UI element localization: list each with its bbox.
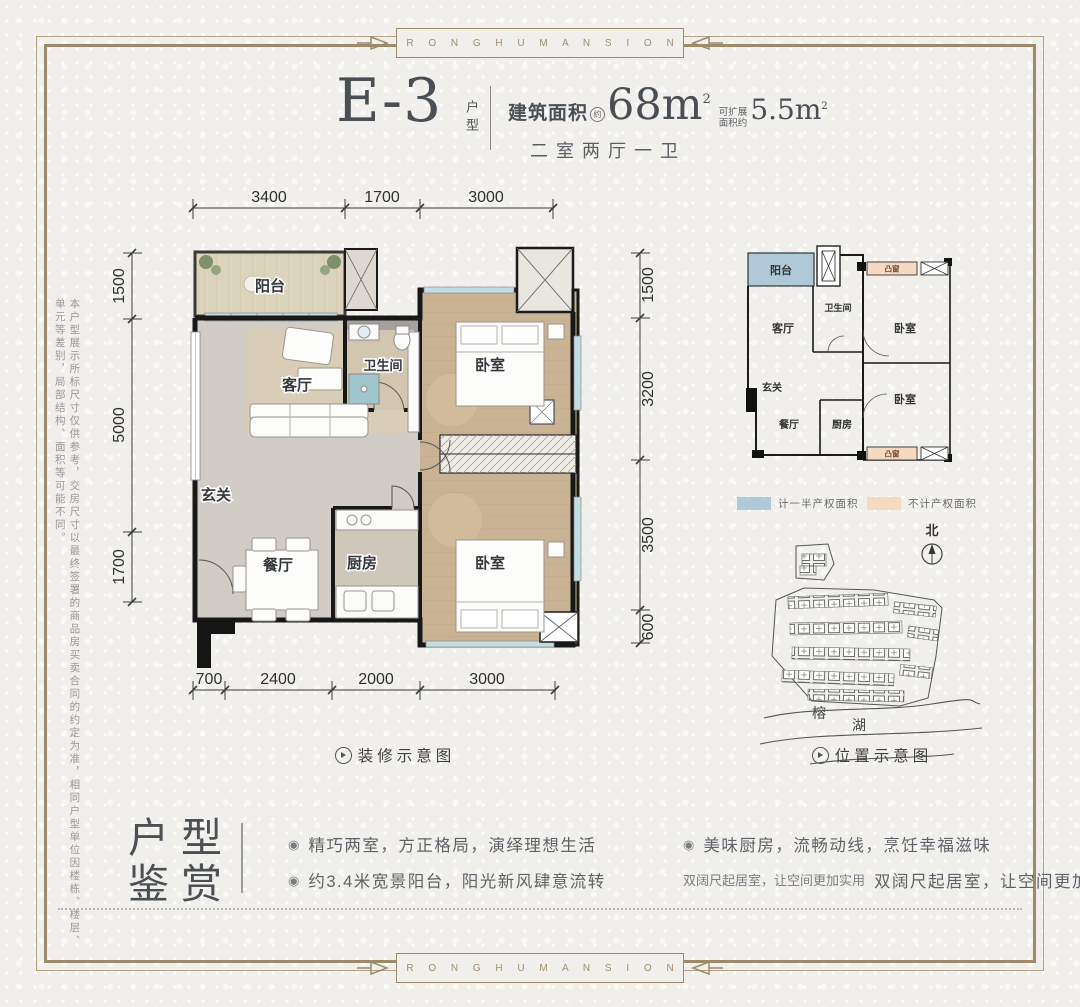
dim-right-1: 1500 xyxy=(640,267,657,303)
left-chevron-icon xyxy=(357,35,391,51)
kitchen-label: 厨房 xyxy=(347,554,377,572)
main-floorplan: 阳台 客厅 卫生间 卧室 玄关 餐厅 厨房 卧室 3400 1700 3000 … xyxy=(105,165,685,790)
bullet-icon: 双阔尺起居室，让空间更加实用 xyxy=(683,874,865,887)
dim-right-4: 600 xyxy=(640,614,657,641)
duct-shaft xyxy=(345,249,377,310)
area-value: 68m xyxy=(607,86,703,125)
kp-wall-chunk xyxy=(857,451,866,460)
expand-area-label: 可扩展面积约 xyxy=(719,108,748,130)
kp-bedroom-bottom-label: 卧室 xyxy=(894,392,916,406)
brand-text: R O N G H U M A N S I O N xyxy=(400,963,679,974)
appreciation-divider xyxy=(241,823,243,893)
kp-wall-chunk xyxy=(857,262,866,271)
kp-bay-top-label: 凸窗 xyxy=(885,264,900,274)
key-plan: 阳台 凸窗 凸窗 客厅 xyxy=(735,235,970,480)
area-label: 建筑面积 xyxy=(508,98,588,125)
dim-left-3: 1700 xyxy=(111,549,128,585)
bullet-item: ◉ 美味厨房，流畅动线，烹饪幸福滋味 xyxy=(683,832,991,856)
bullet-item: ◉ 约3.4米宽景阳台，阳光新风肆意流转 xyxy=(288,868,606,892)
kp-wall-chunk xyxy=(752,450,764,458)
entry-steps xyxy=(197,620,235,668)
dim-bottom-2: 2400 xyxy=(260,671,296,688)
floorplan-caption: 装修示意图 xyxy=(105,744,685,766)
lake-char-2: 湖 xyxy=(852,717,866,733)
siteplan-caption: 位置示意图 xyxy=(752,744,992,766)
kp-bed1-door xyxy=(863,330,889,356)
play-circle-icon xyxy=(335,747,352,764)
dim-bottom-1: 700 xyxy=(196,671,223,688)
bullet-icon: ◉ xyxy=(683,838,694,851)
siteplan-caption-text: 位置示意图 xyxy=(835,744,933,766)
foyer-label: 玄关 xyxy=(201,486,231,504)
kp-foyer-label: 玄关 xyxy=(762,381,782,394)
bedroom1-side-window xyxy=(574,336,581,410)
expand-label-line2: 面积约 xyxy=(719,118,748,129)
appreciation-title-line1: 户型 xyxy=(128,816,234,862)
kp-corner-window-bottom xyxy=(921,447,948,460)
right-chevron-icon xyxy=(689,960,723,976)
kp-elevator xyxy=(817,246,840,286)
kp-right-wall xyxy=(863,262,950,460)
left-chevron-icon xyxy=(357,960,391,976)
bedroom-top-window xyxy=(424,287,514,293)
appreciation-title: 户型 鉴赏 xyxy=(128,816,234,908)
area-block: 建筑面积约68m2可扩展面积约5.5m2 二室两厅一卫 xyxy=(508,86,800,163)
wardrobes xyxy=(420,435,576,473)
lake-char-1: 榕 xyxy=(812,705,826,721)
dim-bottom-3: 2000 xyxy=(358,671,394,688)
dining-furniture xyxy=(233,538,318,621)
dim-top-1: 3400 xyxy=(251,189,287,206)
floorplan-caption-text: 装修示意图 xyxy=(358,744,456,766)
top-border-ornament: R O N G H U M A N S I O N xyxy=(396,28,684,58)
dotted-separator xyxy=(58,908,1022,910)
expand-area-value: 5.5m xyxy=(750,93,821,126)
page: R O N G H U M A N S I O N R O N G H U M … xyxy=(0,0,1080,1007)
expand-label-line1: 可扩展 xyxy=(719,107,748,118)
kp-corner-window-top xyxy=(921,262,948,275)
right-chevron-icon xyxy=(689,35,723,51)
corner-window-box xyxy=(540,612,578,642)
kp-living-label: 客厅 xyxy=(771,321,794,335)
kp-kitchen-label: 厨房 xyxy=(832,418,852,431)
bullet-item: ◉ 精巧两室，方正格局，演绎理想生活 xyxy=(288,832,596,856)
play-circle-icon xyxy=(812,747,829,764)
rooms-summary: 二室两厅一卫 xyxy=(508,137,800,163)
bedroom2-bottom-window xyxy=(426,641,554,647)
site-plan: 榕 湖 xyxy=(752,538,992,778)
dim-left-2: 5000 xyxy=(111,407,128,443)
dim-left-1: 1500 xyxy=(111,268,128,304)
dim-bottom-4: 3000 xyxy=(469,671,505,688)
dim-top-3: 3000 xyxy=(468,189,504,206)
kp-bath-door xyxy=(828,336,844,352)
site-detached-block xyxy=(796,544,834,580)
bedroom2-side-window xyxy=(574,497,581,581)
kp-bedroom-top-label: 卧室 xyxy=(894,321,916,335)
kp-balcony-label: 阳台 xyxy=(770,263,792,277)
legend-label: 计一半产权面积 xyxy=(778,496,859,511)
legend-swatch-orange xyxy=(867,497,901,510)
kp-wall-chunk xyxy=(746,388,757,412)
expand-superscript: 2 xyxy=(821,101,827,112)
bullet-text: 双阔尺起居室，让空间更加实用 xyxy=(874,868,1080,892)
kp-bay-bottom-label: 凸窗 xyxy=(885,449,900,459)
area-superscript: 2 xyxy=(703,92,711,107)
unit-code: E-3 xyxy=(336,66,442,136)
header: E-3 户型 建筑面积约68m2可扩展面积约5.5m2 二室两厅一卫 xyxy=(330,70,800,160)
bullet-text: 约3.4米宽景阳台，阳光新风肆意流转 xyxy=(308,868,605,892)
bullet-icon: ◉ xyxy=(288,874,299,887)
dim-right-3: 3500 xyxy=(640,517,657,553)
living-label: 客厅 xyxy=(281,376,312,394)
bedroom-top-label: 卧室 xyxy=(475,356,505,374)
approx-badge: 约 xyxy=(590,107,605,122)
bullet-text: 美味厨房，流畅动线，烹饪幸福滋味 xyxy=(703,832,991,856)
header-divider xyxy=(490,86,491,150)
bullet-icon: ◉ xyxy=(288,838,299,851)
brand-text: R O N G H U M A N S I O N xyxy=(400,38,679,49)
kp-bed2-door xyxy=(863,394,887,418)
unit-type-label: 户型 xyxy=(462,100,481,136)
elevator-shaft xyxy=(517,248,573,312)
appreciation-title-line2: 鉴赏 xyxy=(128,862,234,908)
bedroom-bottom-label: 卧室 xyxy=(475,554,505,572)
site-buildings xyxy=(782,593,939,702)
dim-right-2: 3200 xyxy=(640,371,657,407)
kp-dining-label: 餐厅 xyxy=(778,418,799,431)
plant xyxy=(199,255,213,269)
legend-no-property: 不计产权面积 xyxy=(867,496,977,511)
plant xyxy=(327,255,341,269)
bullet-text: 精巧两室，方正格局，演绎理想生活 xyxy=(308,832,596,856)
legend-half-property: 计一半产权面积 xyxy=(737,496,859,511)
kp-bathroom-label: 卫生间 xyxy=(824,302,851,313)
legend-label: 不计产权面积 xyxy=(908,496,977,511)
side-disclaimer: 本户型展示所标尺寸仅供参考，交房尺寸以最终签署的商品房买卖合同的约定为准，相同户… xyxy=(52,298,81,958)
legend-swatch-blue xyxy=(737,497,771,510)
plant xyxy=(320,265,330,275)
bullet-item: 双阔尺起居室，让空间更加实用 双阔尺起居室，让空间更加实用 xyxy=(683,868,1080,892)
balcony-label: 阳台 xyxy=(255,277,285,295)
bottom-border-ornament: R O N G H U M A N S I O N xyxy=(396,953,684,983)
north-label: 北 xyxy=(917,520,947,539)
dining-label: 餐厅 xyxy=(263,556,293,574)
dim-top-2: 1700 xyxy=(364,189,400,206)
plant xyxy=(211,265,221,275)
bathroom-label: 卫生间 xyxy=(363,358,402,373)
